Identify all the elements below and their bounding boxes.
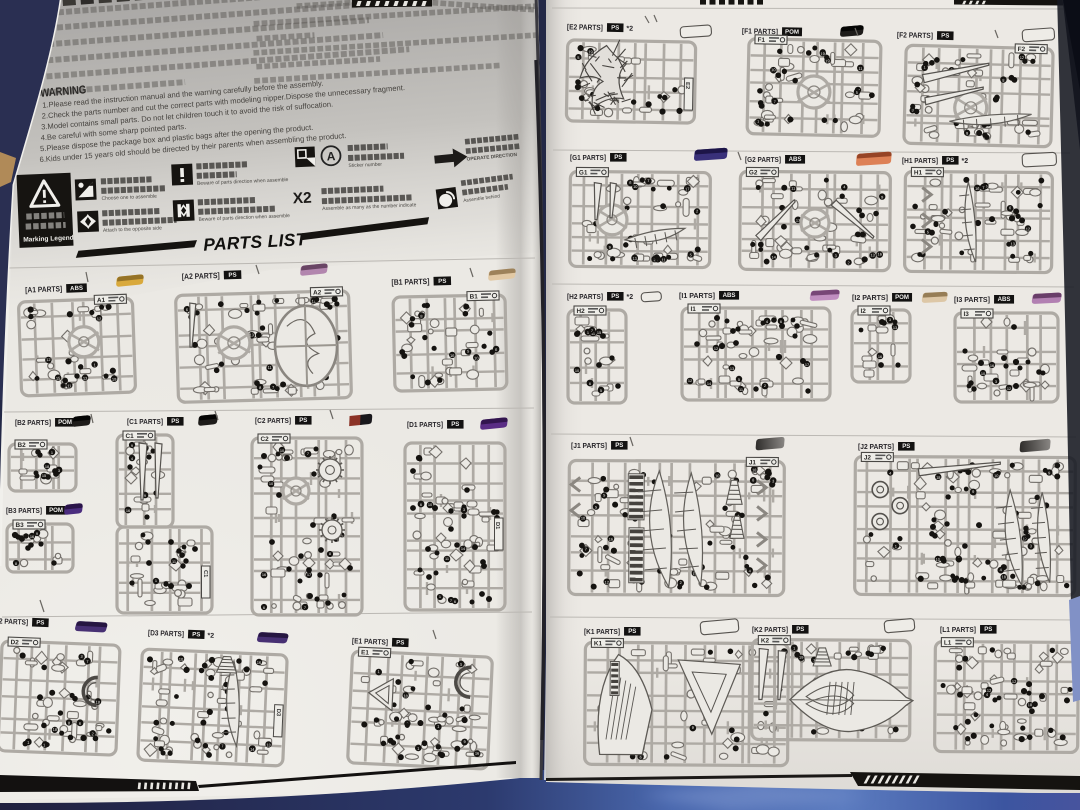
svg-text:C1: C1 — [202, 570, 208, 578]
svg-text:[L1 PARTS]: [L1 PARTS] — [940, 625, 976, 634]
svg-text:11: 11 — [172, 559, 176, 564]
svg-text:13: 13 — [1011, 241, 1015, 246]
svg-text:5: 5 — [738, 377, 740, 382]
svg-text:11: 11 — [662, 257, 666, 262]
svg-text:J1: J1 — [749, 459, 757, 466]
svg-text:PS: PS — [192, 631, 200, 638]
svg-text:[D1 PARTS]: [D1 PARTS] — [407, 420, 443, 429]
svg-text:7: 7 — [647, 178, 649, 183]
svg-text:[F2 PARTS]: [F2 PARTS] — [897, 30, 934, 40]
svg-text:7: 7 — [982, 185, 984, 190]
svg-text:9: 9 — [36, 531, 38, 536]
svg-text:[A2 PARTS]: [A2 PARTS] — [182, 271, 221, 281]
svg-text:12: 12 — [714, 346, 718, 351]
svg-text:18: 18 — [45, 464, 49, 469]
svg-text:A: A — [326, 149, 336, 163]
svg-text:PS: PS — [171, 418, 179, 425]
svg-text:16: 16 — [990, 363, 994, 368]
svg-text:13: 13 — [632, 256, 636, 261]
svg-text:PS: PS — [796, 626, 804, 633]
svg-text:8: 8 — [752, 477, 754, 482]
svg-text:8: 8 — [259, 385, 261, 390]
svg-text:ABS: ABS — [70, 285, 83, 292]
svg-text:B2: B2 — [18, 442, 27, 449]
svg-text:13: 13 — [83, 376, 87, 381]
svg-text:9: 9 — [972, 489, 974, 494]
svg-text:19: 19 — [588, 49, 592, 54]
svg-text:7: 7 — [585, 547, 587, 552]
svg-text:19: 19 — [112, 377, 116, 382]
svg-text:[E1 PARTS]: [E1 PARTS] — [352, 636, 389, 646]
svg-text:1: 1 — [155, 578, 157, 583]
svg-text:[J1 PARTS]: [J1 PARTS] — [571, 441, 607, 450]
svg-text:7: 7 — [272, 385, 274, 390]
svg-text:[C1 PARTS]: [C1 PARTS] — [127, 417, 163, 426]
svg-text:11: 11 — [268, 365, 272, 370]
svg-text:[E2 PARTS]: [E2 PARTS] — [567, 22, 604, 32]
svg-text:1: 1 — [439, 594, 441, 599]
svg-text:7: 7 — [591, 328, 593, 333]
svg-text:PS: PS — [941, 32, 949, 39]
svg-text:12: 12 — [97, 316, 101, 321]
svg-text:16: 16 — [878, 252, 882, 257]
svg-text:PS: PS — [946, 157, 954, 164]
svg-text:[D2 PARTS]: [D2 PARTS] — [0, 616, 29, 626]
svg-text:12: 12 — [1012, 679, 1016, 684]
svg-text:PS: PS — [611, 293, 619, 300]
svg-text:POM: POM — [785, 29, 799, 36]
svg-text:5: 5 — [690, 252, 692, 257]
svg-text:9: 9 — [966, 131, 968, 136]
svg-text:16: 16 — [30, 534, 34, 539]
svg-text:G1: G1 — [579, 169, 588, 176]
svg-text:ABS: ABS — [789, 156, 802, 163]
svg-text:16: 16 — [262, 572, 266, 577]
svg-text:7: 7 — [86, 659, 88, 664]
svg-text:6: 6 — [263, 605, 265, 610]
svg-text:6: 6 — [454, 599, 456, 604]
svg-text:1: 1 — [437, 724, 439, 729]
svg-text:[B2 PARTS]: [B2 PARTS] — [15, 418, 51, 427]
svg-text:7: 7 — [307, 451, 309, 456]
svg-text:[I1 PARTS]: [I1 PARTS] — [679, 291, 715, 300]
svg-text:[A1 PARTS]: [A1 PARTS] — [25, 284, 63, 294]
svg-text:12: 12 — [688, 378, 692, 383]
svg-text:3: 3 — [772, 479, 774, 484]
svg-text:16: 16 — [609, 537, 613, 542]
svg-text:5: 5 — [603, 493, 605, 498]
svg-text:[G2 PARTS]: [G2 PARTS] — [745, 155, 781, 164]
svg-text:9: 9 — [1048, 470, 1050, 475]
svg-text:2: 2 — [680, 580, 682, 585]
svg-text:E2: E2 — [684, 82, 690, 89]
svg-text:F2: F2 — [1018, 46, 1026, 53]
svg-text:16: 16 — [475, 751, 480, 756]
svg-text:5: 5 — [595, 505, 597, 510]
svg-text:16: 16 — [878, 354, 882, 359]
svg-text:11: 11 — [858, 66, 862, 71]
svg-text:6: 6 — [629, 180, 631, 185]
svg-text:*2: *2 — [627, 294, 634, 301]
svg-text:I1: I1 — [691, 306, 697, 313]
svg-text:8: 8 — [420, 314, 422, 319]
svg-text:[J2 PARTS]: [J2 PARTS] — [858, 442, 894, 451]
svg-text:15: 15 — [56, 376, 60, 381]
svg-text:12: 12 — [605, 580, 609, 585]
svg-text:PS: PS — [299, 417, 307, 424]
svg-text:PS: PS — [396, 639, 404, 646]
svg-text:6: 6 — [640, 755, 642, 760]
svg-text:POM: POM — [895, 294, 909, 301]
svg-text:1: 1 — [793, 646, 795, 651]
svg-text:B1: B1 — [469, 293, 478, 300]
svg-text:16: 16 — [975, 186, 979, 191]
svg-text:1: 1 — [587, 330, 589, 335]
svg-text:18: 18 — [752, 467, 756, 472]
svg-text:6: 6 — [420, 502, 422, 507]
svg-text:3: 3 — [80, 654, 82, 659]
svg-text:19: 19 — [799, 655, 803, 660]
svg-text:PS: PS — [438, 278, 446, 285]
svg-text:12: 12 — [46, 357, 50, 362]
svg-text:*2: *2 — [207, 633, 214, 640]
svg-text:X2: X2 — [292, 190, 312, 208]
svg-text:*2: *2 — [962, 158, 969, 165]
svg-text:E1: E1 — [361, 649, 370, 656]
svg-text:I2: I2 — [861, 308, 867, 315]
svg-text:6: 6 — [495, 347, 497, 352]
svg-text:6: 6 — [79, 721, 81, 726]
svg-text:D3: D3 — [275, 709, 281, 717]
svg-text:11: 11 — [791, 186, 795, 191]
svg-text:K2: K2 — [761, 638, 770, 645]
svg-text:18: 18 — [53, 727, 58, 732]
svg-text:PS: PS — [902, 443, 910, 450]
svg-text:7: 7 — [450, 598, 452, 603]
svg-text:F1: F1 — [757, 37, 765, 44]
svg-text:13: 13 — [871, 252, 875, 257]
svg-text:PS: PS — [614, 154, 622, 161]
svg-text:[H1 PARTS]: [H1 PARTS] — [902, 156, 938, 165]
svg-text:15: 15 — [42, 473, 46, 478]
svg-text:12: 12 — [987, 688, 991, 693]
svg-text:5: 5 — [467, 349, 469, 354]
svg-text:5: 5 — [927, 230, 929, 235]
svg-text:POM: POM — [58, 419, 72, 426]
svg-text:2: 2 — [696, 208, 698, 213]
svg-text:A1: A1 — [97, 297, 106, 304]
svg-text:H1: H1 — [914, 169, 923, 176]
svg-text:7: 7 — [221, 743, 223, 748]
svg-text:I3: I3 — [964, 311, 970, 318]
svg-text:3: 3 — [835, 253, 837, 258]
svg-text:[B3 PARTS]: [B3 PARTS] — [6, 506, 42, 515]
svg-text:POM: POM — [49, 507, 63, 514]
svg-text:2: 2 — [764, 383, 766, 388]
svg-text:11: 11 — [739, 387, 743, 392]
svg-text:9: 9 — [692, 725, 694, 730]
svg-text:D2: D2 — [10, 639, 19, 646]
svg-text:PS: PS — [984, 626, 992, 633]
svg-text:1: 1 — [378, 669, 380, 674]
svg-text:G2: G2 — [749, 169, 758, 176]
svg-text:9: 9 — [144, 493, 146, 498]
svg-text:7: 7 — [304, 605, 306, 610]
svg-text:1: 1 — [51, 450, 53, 455]
svg-text:6: 6 — [1009, 205, 1011, 210]
svg-text:3: 3 — [463, 507, 465, 512]
svg-text:16: 16 — [450, 353, 454, 358]
svg-text:18: 18 — [1002, 574, 1006, 579]
svg-text:C1: C1 — [126, 433, 135, 440]
svg-text:[H2 PARTS]: [H2 PARTS] — [567, 292, 603, 301]
svg-text:[C2 PARTS]: [C2 PARTS] — [255, 416, 291, 425]
svg-text:16: 16 — [126, 508, 130, 513]
svg-text:8: 8 — [1002, 78, 1004, 83]
svg-text:17: 17 — [307, 572, 311, 577]
svg-text:PS: PS — [36, 619, 44, 626]
svg-text:K1: K1 — [594, 640, 603, 647]
svg-text:9: 9 — [609, 245, 611, 250]
svg-text:PS: PS — [628, 628, 636, 635]
svg-text:7: 7 — [774, 99, 776, 104]
svg-text:PS: PS — [611, 24, 619, 31]
svg-text:3: 3 — [995, 379, 997, 384]
svg-text:3: 3 — [1030, 543, 1032, 548]
svg-text:5: 5 — [577, 55, 579, 60]
svg-text:11: 11 — [445, 556, 449, 561]
svg-text:D1: D1 — [494, 522, 500, 530]
svg-text:A2: A2 — [313, 289, 322, 296]
svg-text:6: 6 — [186, 307, 188, 312]
svg-text:[B1 PARTS]: [B1 PARTS] — [391, 277, 430, 287]
svg-text:6: 6 — [780, 319, 782, 324]
svg-text:[D3 PARTS]: [D3 PARTS] — [148, 628, 185, 638]
svg-text:18: 18 — [936, 475, 940, 480]
svg-text:J2: J2 — [864, 454, 872, 461]
svg-text:PS: PS — [615, 442, 623, 449]
svg-text:[K2 PARTS]: [K2 PARTS] — [752, 625, 788, 634]
svg-text:18: 18 — [403, 693, 408, 698]
svg-text:13: 13 — [730, 366, 734, 371]
svg-text:12: 12 — [1007, 386, 1011, 391]
svg-text:8: 8 — [68, 720, 70, 725]
svg-text:1: 1 — [417, 746, 419, 751]
svg-text:9: 9 — [131, 443, 133, 448]
svg-text:1: 1 — [895, 544, 897, 549]
svg-text:18: 18 — [1028, 702, 1032, 707]
svg-text:PS: PS — [228, 272, 236, 279]
svg-text:9: 9 — [881, 195, 883, 200]
svg-text:ABS: ABS — [998, 296, 1011, 303]
svg-text:13: 13 — [893, 325, 897, 330]
svg-text:B3: B3 — [16, 522, 25, 529]
svg-text:C2: C2 — [261, 436, 270, 443]
svg-text:17: 17 — [685, 186, 689, 191]
svg-text:[I3 PARTS]: [I3 PARTS] — [954, 295, 990, 304]
svg-text:2: 2 — [848, 260, 850, 265]
svg-text:[I2 PARTS]: [I2 PARTS] — [852, 293, 888, 302]
svg-text:9: 9 — [463, 739, 465, 744]
svg-text:PS: PS — [451, 421, 459, 428]
svg-text:13: 13 — [266, 742, 271, 747]
svg-text:11: 11 — [67, 383, 71, 388]
svg-text:5: 5 — [460, 662, 462, 667]
svg-text:*2: *2 — [626, 26, 633, 33]
svg-text:8: 8 — [329, 551, 331, 556]
svg-text:[K1 PARTS]: [K1 PARTS] — [584, 627, 620, 636]
svg-text:8: 8 — [15, 561, 17, 566]
svg-text:12: 12 — [1026, 226, 1030, 231]
svg-text:16: 16 — [257, 660, 262, 665]
svg-text:1: 1 — [93, 362, 95, 367]
svg-text:[G1 PARTS]: [G1 PARTS] — [570, 153, 606, 162]
svg-text:15: 15 — [597, 330, 601, 335]
svg-text:L1: L1 — [944, 640, 952, 647]
svg-text:ABS: ABS — [723, 292, 736, 299]
svg-text:3: 3 — [889, 317, 891, 322]
svg-text:17: 17 — [805, 362, 809, 367]
svg-text:19: 19 — [821, 51, 825, 56]
svg-text:H2: H2 — [577, 308, 586, 315]
svg-text:2: 2 — [91, 731, 93, 736]
svg-text:5: 5 — [856, 90, 858, 95]
svg-text:5: 5 — [600, 388, 602, 393]
svg-text:6: 6 — [589, 381, 591, 386]
svg-text:1: 1 — [27, 740, 29, 745]
